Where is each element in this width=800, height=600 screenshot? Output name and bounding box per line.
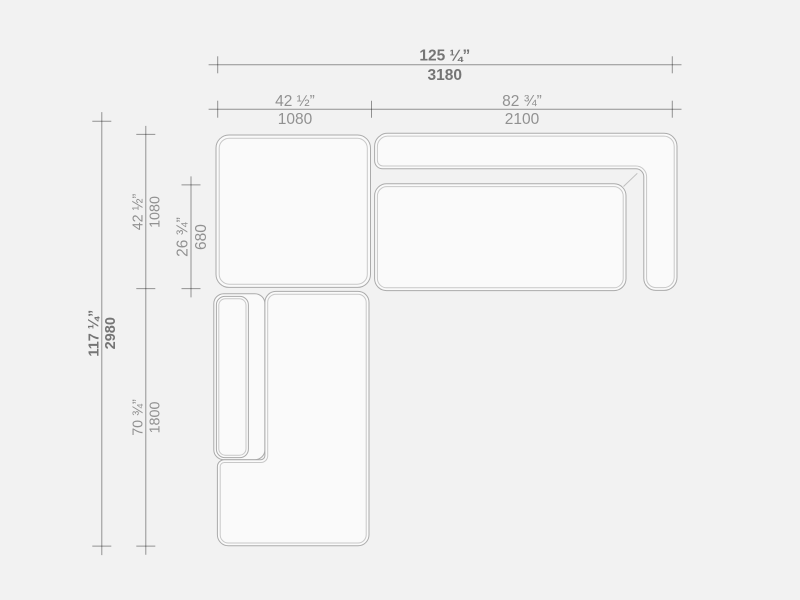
svg-text:2100: 2100 [505, 111, 540, 128]
svg-text:26 ¾”: 26 ¾” [174, 217, 191, 257]
svg-text:1080: 1080 [147, 196, 163, 228]
svg-text:3180: 3180 [428, 67, 462, 84]
svg-text:2980: 2980 [103, 317, 119, 349]
svg-text:42 ½”: 42 ½” [130, 193, 146, 230]
svg-text:70 ¾”: 70 ¾” [130, 399, 146, 436]
svg-text:680: 680 [193, 224, 210, 250]
svg-text:82 ¾”: 82 ¾” [502, 93, 542, 110]
svg-text:117 ¼”: 117 ¼” [86, 310, 102, 357]
svg-text:1080: 1080 [278, 111, 313, 128]
svg-text:42 ½”: 42 ½” [275, 93, 315, 110]
svg-text:1800: 1800 [147, 402, 163, 434]
svg-text:125 ¼”: 125 ¼” [419, 48, 470, 65]
